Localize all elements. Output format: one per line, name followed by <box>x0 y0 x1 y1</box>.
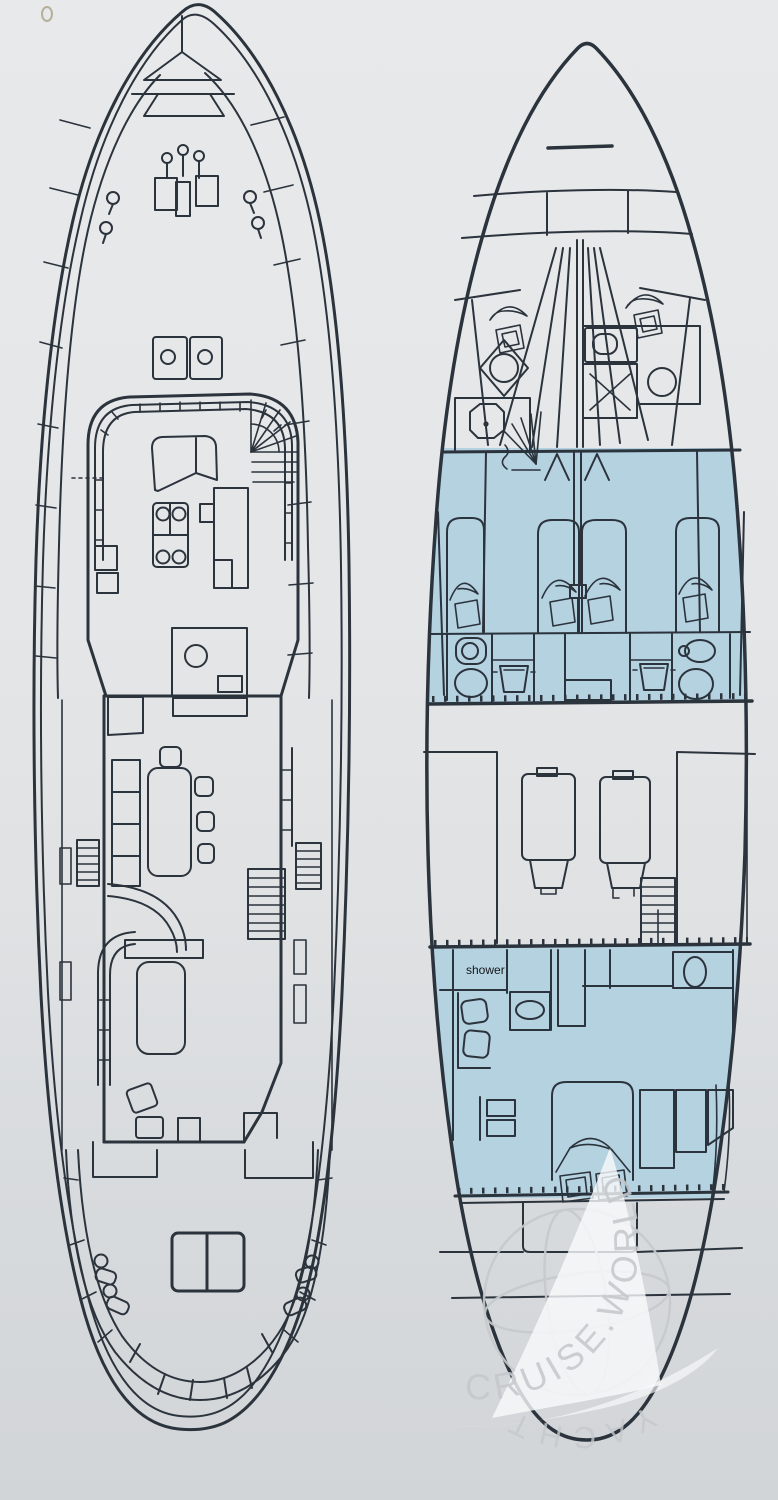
wheelhouse <box>72 394 298 696</box>
yacht-deck-plans-image: shower CRUISE.WORLD YACHT <box>0 0 778 1500</box>
door-step <box>178 1118 200 1142</box>
stairs-center <box>248 869 285 939</box>
guest-cabin-fill <box>400 448 770 703</box>
curved-partition <box>108 884 186 952</box>
sideboard <box>173 698 247 716</box>
engine-room <box>424 752 755 947</box>
main-deck-plan <box>34 5 350 1430</box>
anchor-windlass <box>155 145 218 216</box>
photo-speck <box>42 7 52 21</box>
crew-cabin <box>455 240 705 470</box>
toilet-icon <box>648 368 676 396</box>
aft-deck <box>64 1142 332 1400</box>
cabinet <box>125 940 203 958</box>
deck-hatch <box>172 1233 244 1291</box>
cabin-fill-areas <box>400 448 770 1198</box>
dining-chair <box>198 844 214 863</box>
bulwark-segments-right <box>251 117 313 655</box>
berth-pillow <box>626 295 663 338</box>
hull-outline <box>34 5 350 1430</box>
dining-chair <box>195 777 213 796</box>
dining-chair <box>197 812 214 831</box>
dining-table <box>148 747 214 876</box>
helm-console <box>152 436 217 491</box>
port-bench <box>112 760 140 886</box>
watermark-bottom-text: YACHT <box>496 1400 662 1456</box>
toilet-icon <box>185 645 207 667</box>
crew-head <box>583 326 700 418</box>
salon <box>60 696 321 1142</box>
scanned-deck-plan-page: shower CRUISE.WORLD YACHT <box>0 0 778 1500</box>
engine-room-stairs <box>641 878 675 944</box>
stool <box>136 1117 163 1138</box>
entry-locker <box>108 697 143 735</box>
foredeck-hatches <box>153 337 222 379</box>
aft-lockers <box>93 1142 313 1178</box>
dinette-table <box>153 503 188 567</box>
shower-label: shower <box>466 963 505 977</box>
bow-platform <box>132 16 234 116</box>
side-table <box>126 1082 159 1113</box>
stanchions <box>60 848 306 1023</box>
fuel-tanks <box>424 752 755 945</box>
stairs-port <box>77 840 99 886</box>
engine <box>522 768 575 894</box>
stern-walkway-segments <box>64 1178 332 1342</box>
svg-text:YACHT: YACHT <box>496 1400 662 1456</box>
galley-counter <box>200 488 248 588</box>
toilet-room <box>172 628 247 696</box>
sofa <box>137 962 185 1054</box>
stairs-starboard <box>296 843 321 889</box>
dining-chair <box>160 747 181 767</box>
